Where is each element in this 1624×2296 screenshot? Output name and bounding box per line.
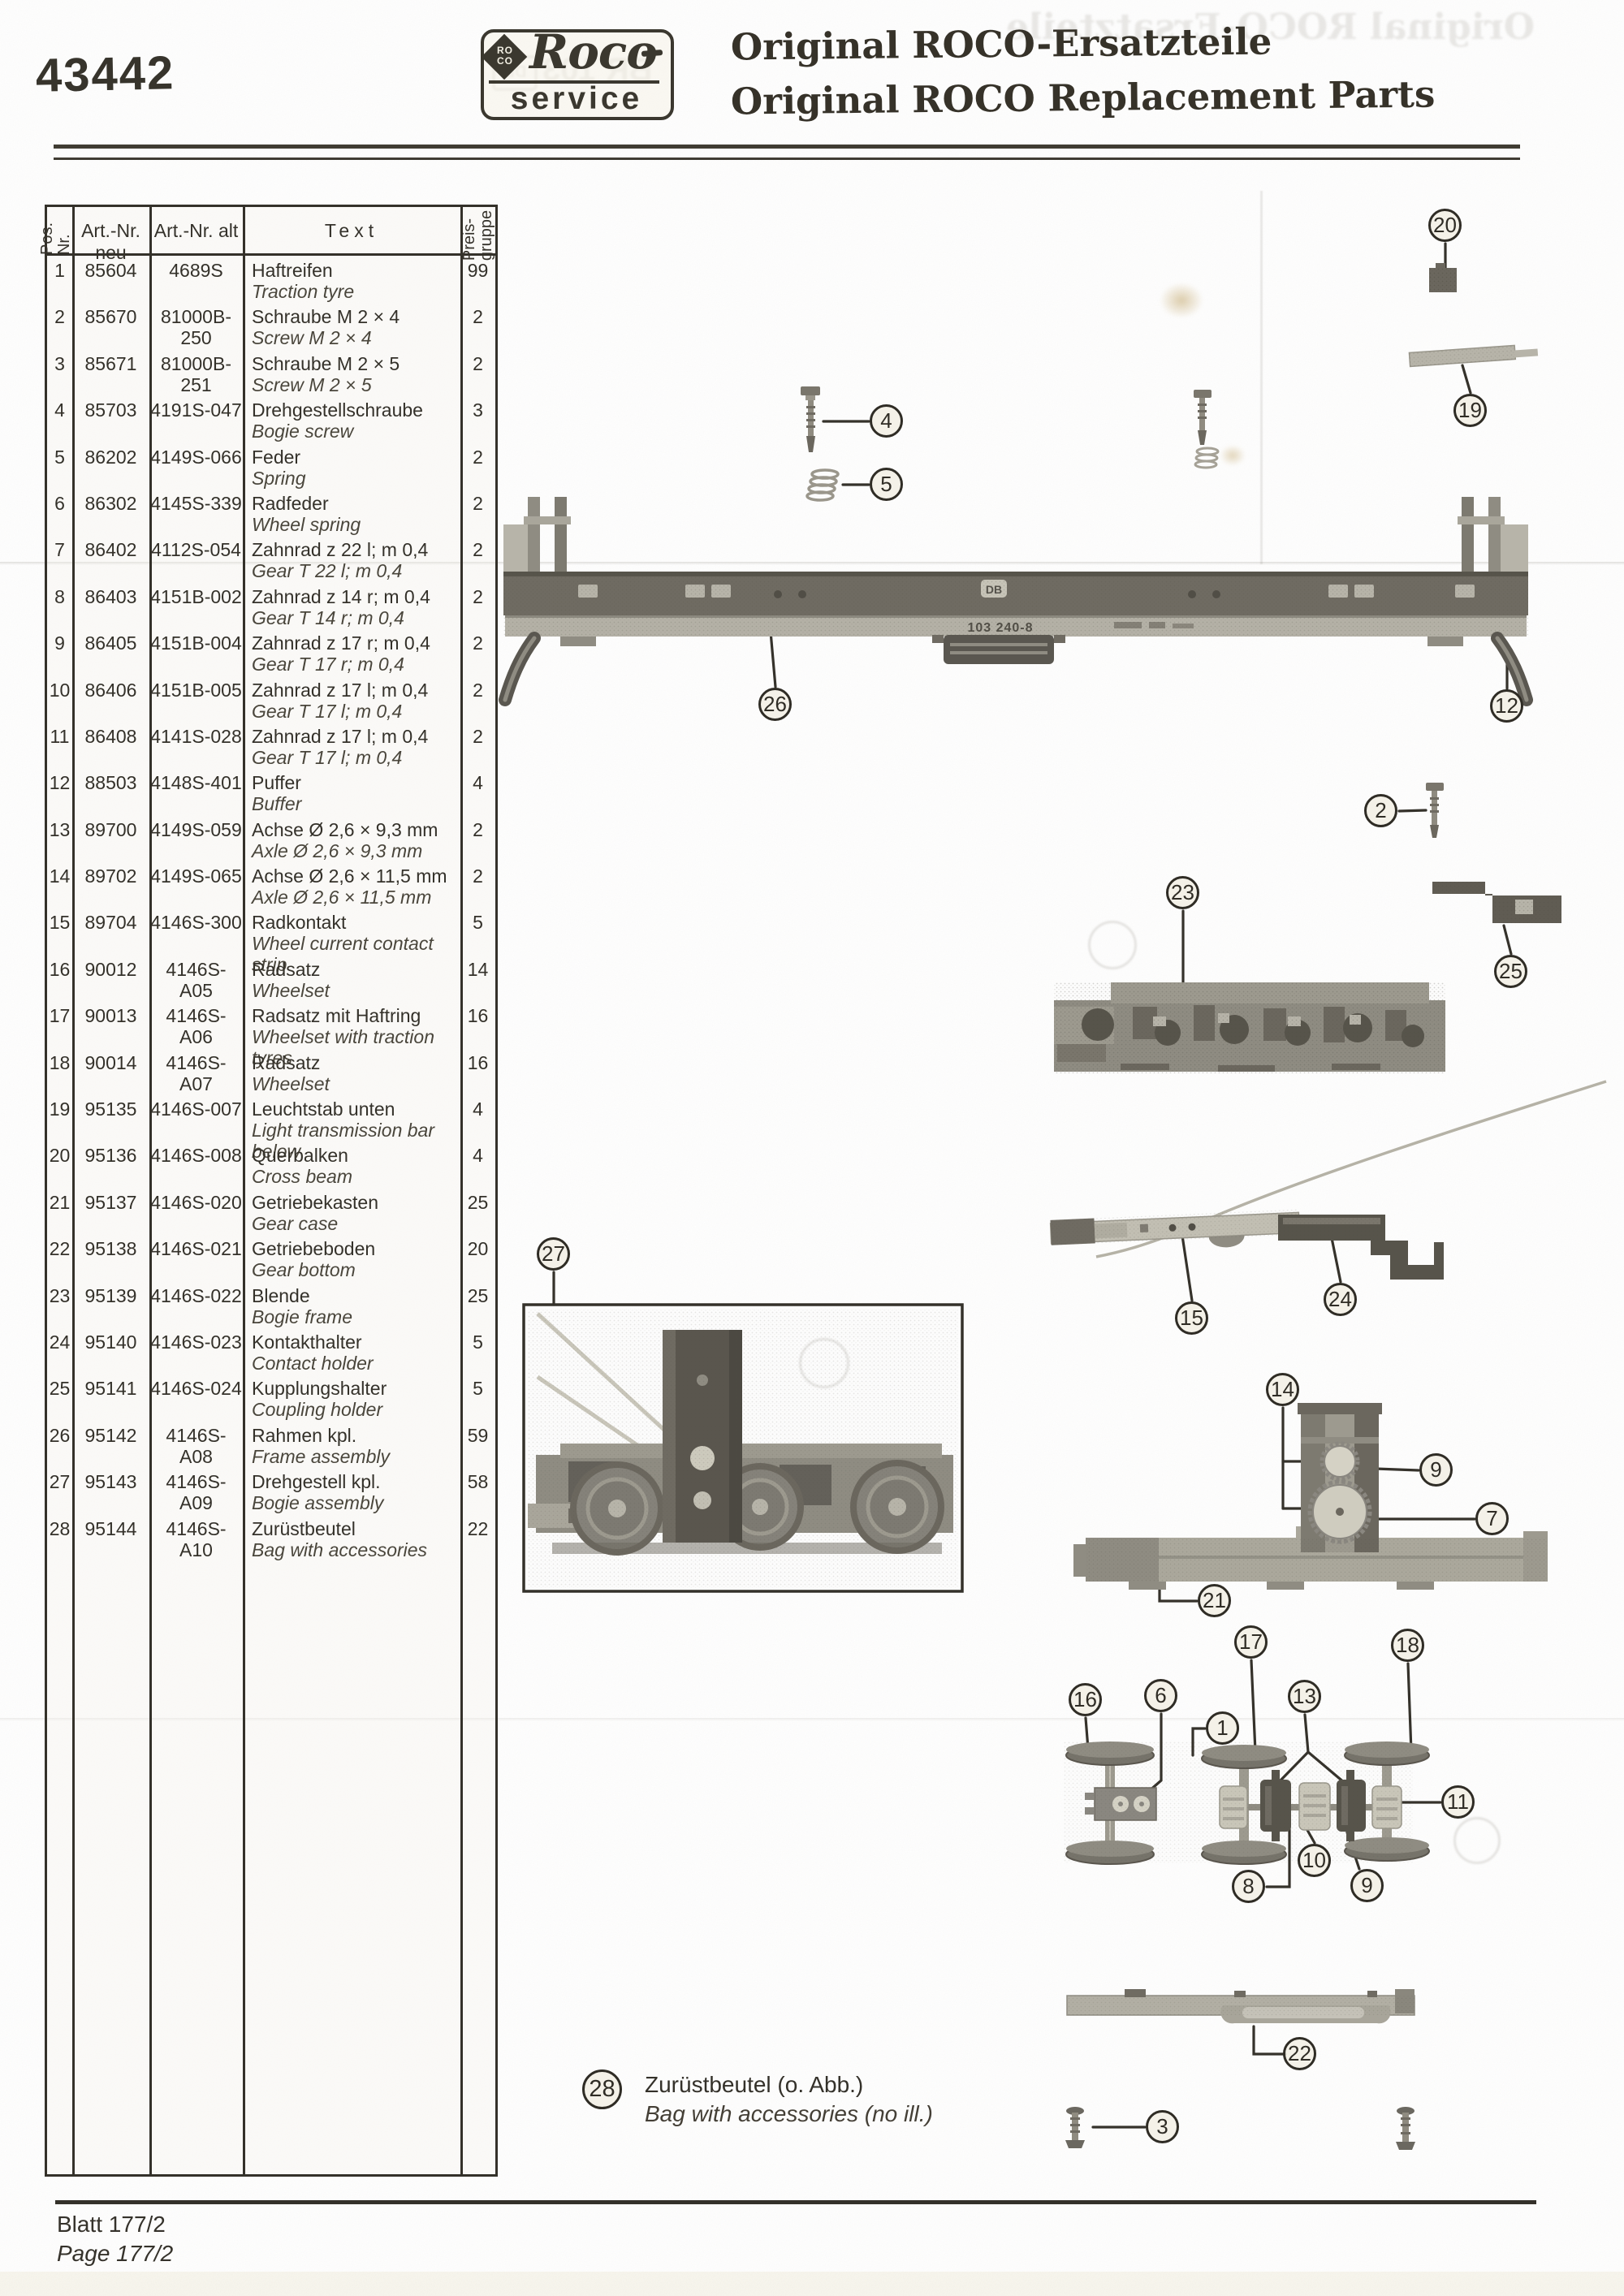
part-description: RadsatzWheelset [243,955,460,1001]
footer-sheet-number-de: Blatt 177/2 [57,2212,166,2238]
part-description: ZurüstbeutelBag with accessories [243,1514,460,1560]
header-rule-2 [54,158,1520,160]
table-row: 10864064151B-005Zahnrad z 17 l; m 0,4Gea… [47,675,495,722]
table-row: 23951394146S-022BlendeBogie frame25 [47,1281,495,1327]
table-row: 13897004149S-059Achse Ø 2,6 × 9,3 mmAxle… [47,815,495,861]
part-description: KontakthalterContact holder [243,1327,460,1374]
footer-rule [55,2200,1536,2204]
table-row: 16900124146S-A05RadsatzWheelset14 [47,955,495,1001]
page-title-en: Original ROCO Replacement Parts [731,72,1436,123]
table-row: 1856044689SHaftreifenTraction tyre99 [47,256,495,302]
note-bag-de: Zurüstbeutel (o. Abb.) [645,2072,863,2098]
part-description: Achse Ø 2,6 × 11,5 mmAxle Ø 2,6 × 11,5 m… [243,861,460,908]
part-description: Zahnrad z 17 l; m 0,4Gear T 17 l; m 0,4 [243,675,460,722]
part-description: RadkontaktWheel current contact strip [243,908,460,954]
table-row: 5862024149S-066FederSpring2 [47,442,495,489]
part-description: QuerbalkenCross beam [243,1141,460,1187]
part-description: KupplungshalterCoupling holder [243,1374,460,1420]
part-description: FederSpring [243,442,460,489]
part-description: Radsatz mit HaftringWheelset with tracti… [243,1001,460,1047]
table-row: 9864054151B-004Zahnrad z 17 r; m 0,4Gear… [47,628,495,675]
col-header-pos: Pos.Nr. [39,222,73,255]
part-description: Zahnrad z 22 l; m 0,4Gear T 22 l; m 0,4 [243,535,460,581]
part-description: DrehgestellschraubeBogie screw [243,395,460,442]
part-description: Zahnrad z 17 r; m 0,4Gear T 17 r; m 0,4 [243,628,460,675]
table-row: 21951374146S-020GetriebekastenGear case2… [47,1188,495,1234]
part-description: HaftreifenTraction tyre [243,256,460,302]
note-bag-en: Bag with accessories (no ill.) [645,2101,933,2127]
table-row: 6863024145S-339RadfederWheel spring2 [47,489,495,535]
table-row: 27951434146S-A09Drehgestell kpl.Bogie as… [47,1467,495,1513]
part-description: GetriebebodenGear bottom [243,1234,460,1280]
table-row: 28567081000B-250Schraube M 2 × 4Screw M … [47,302,495,348]
part-bogie-frame-photo [1054,982,1445,1073]
part-description: Rahmen kpl.Frame assembly [243,1421,460,1467]
part-description: Leuchtstab untenLight transmission bar b… [243,1094,460,1141]
inset-bogie-assembly [524,1305,962,1591]
page-title-de: Original ROCO-Ersatzteile [731,20,1272,69]
table-row: 14897024149S-065Achse Ø 2,6 × 11,5 mmAxl… [47,861,495,908]
part-description: PufferBuffer [243,768,460,814]
part-description: RadsatzWheelset [243,1048,460,1094]
parts-table: Pos.Nr. Art.-Nr. neu Art.-Nr. alt Text P… [45,205,498,2177]
header-rule-1 [54,145,1520,149]
part-description: Schraube M 2 × 5Screw M 2 × 5 [243,349,460,395]
part-description: RadfederWheel spring [243,489,460,535]
table-row: 8864034151B-002Zahnrad z 14 r; m 0,4Gear… [47,582,495,628]
col-header-art-alt: Art.-Nr. alt [149,220,243,242]
table-row: 18900144146S-A07RadsatzWheelset16 [47,1048,495,1094]
roco-diamond-text: ROCO [486,45,525,67]
part-wheelsets-group [1064,1741,1429,1864]
part-description: Zahnrad z 14 r; m 0,4Gear T 14 r; m 0,4 [243,582,460,628]
roco-brand-script: Roco [529,24,657,80]
sheet-number: 43442 [35,45,175,103]
table-row: 19951354146S-007Leuchtstab untenLight tr… [47,1094,495,1141]
table-row: 12885034148S-401PufferBuffer4 [47,768,495,814]
table-row: 11864084141S-028Zahnrad z 17 l; m 0,4Gea… [47,722,495,768]
footer-sheet-number-en: Page 177/2 [57,2241,173,2267]
table-rows: 1856044689SHaftreifenTraction tyre992856… [47,256,495,1560]
table-header-row: Pos.Nr. Art.-Nr. neu Art.-Nr. alt Text P… [47,207,495,253]
part-description: Zahnrad z 17 l; m 0,4Gear T 17 l; m 0,4 [243,722,460,768]
table-row: 4857034191S-047DrehgestellschraubeBogie … [47,395,495,442]
table-row: 15897044146S-300RadkontaktWheel current … [47,908,495,954]
col-header-text: Text [243,220,460,242]
table-row: 25951414146S-024KupplungshalterCoupling … [47,1374,495,1420]
part-description: Drehgestell kpl.Bogie assembly [243,1467,460,1513]
table-row: 22951384146S-021GetriebebodenGear bottom… [47,1234,495,1280]
table-row: 20951364146S-008QuerbalkenCross beam4 [47,1141,495,1187]
table-row: 28951444146S-A10ZurüstbeutelBag with acc… [47,1514,495,1560]
part-description: GetriebekastenGear case [243,1188,460,1234]
table-row: 38567181000B-251Schraube M 2 × 5Screw M … [47,349,495,395]
table-row: 17900134146S-A06Radsatz mit HaftringWhee… [47,1001,495,1047]
part-description: BlendeBogie frame [243,1281,460,1327]
table-row: 7864024112S-054Zahnrad z 22 l; m 0,4Gear… [47,535,495,581]
roco-service-label: service [495,81,658,117]
table-row: 24951404146S-023KontakthalterContact hol… [47,1327,495,1374]
part-description: Achse Ø 2,6 × 9,3 mmAxle Ø 2,6 × 9,3 mm [243,815,460,861]
col-header-preisgruppe: Preis-gruppe [461,210,495,261]
table-row: 26951424146S-A08Rahmen kpl.Frame assembl… [47,1421,495,1467]
part-description: Schraube M 2 × 4Screw M 2 × 4 [243,302,460,348]
